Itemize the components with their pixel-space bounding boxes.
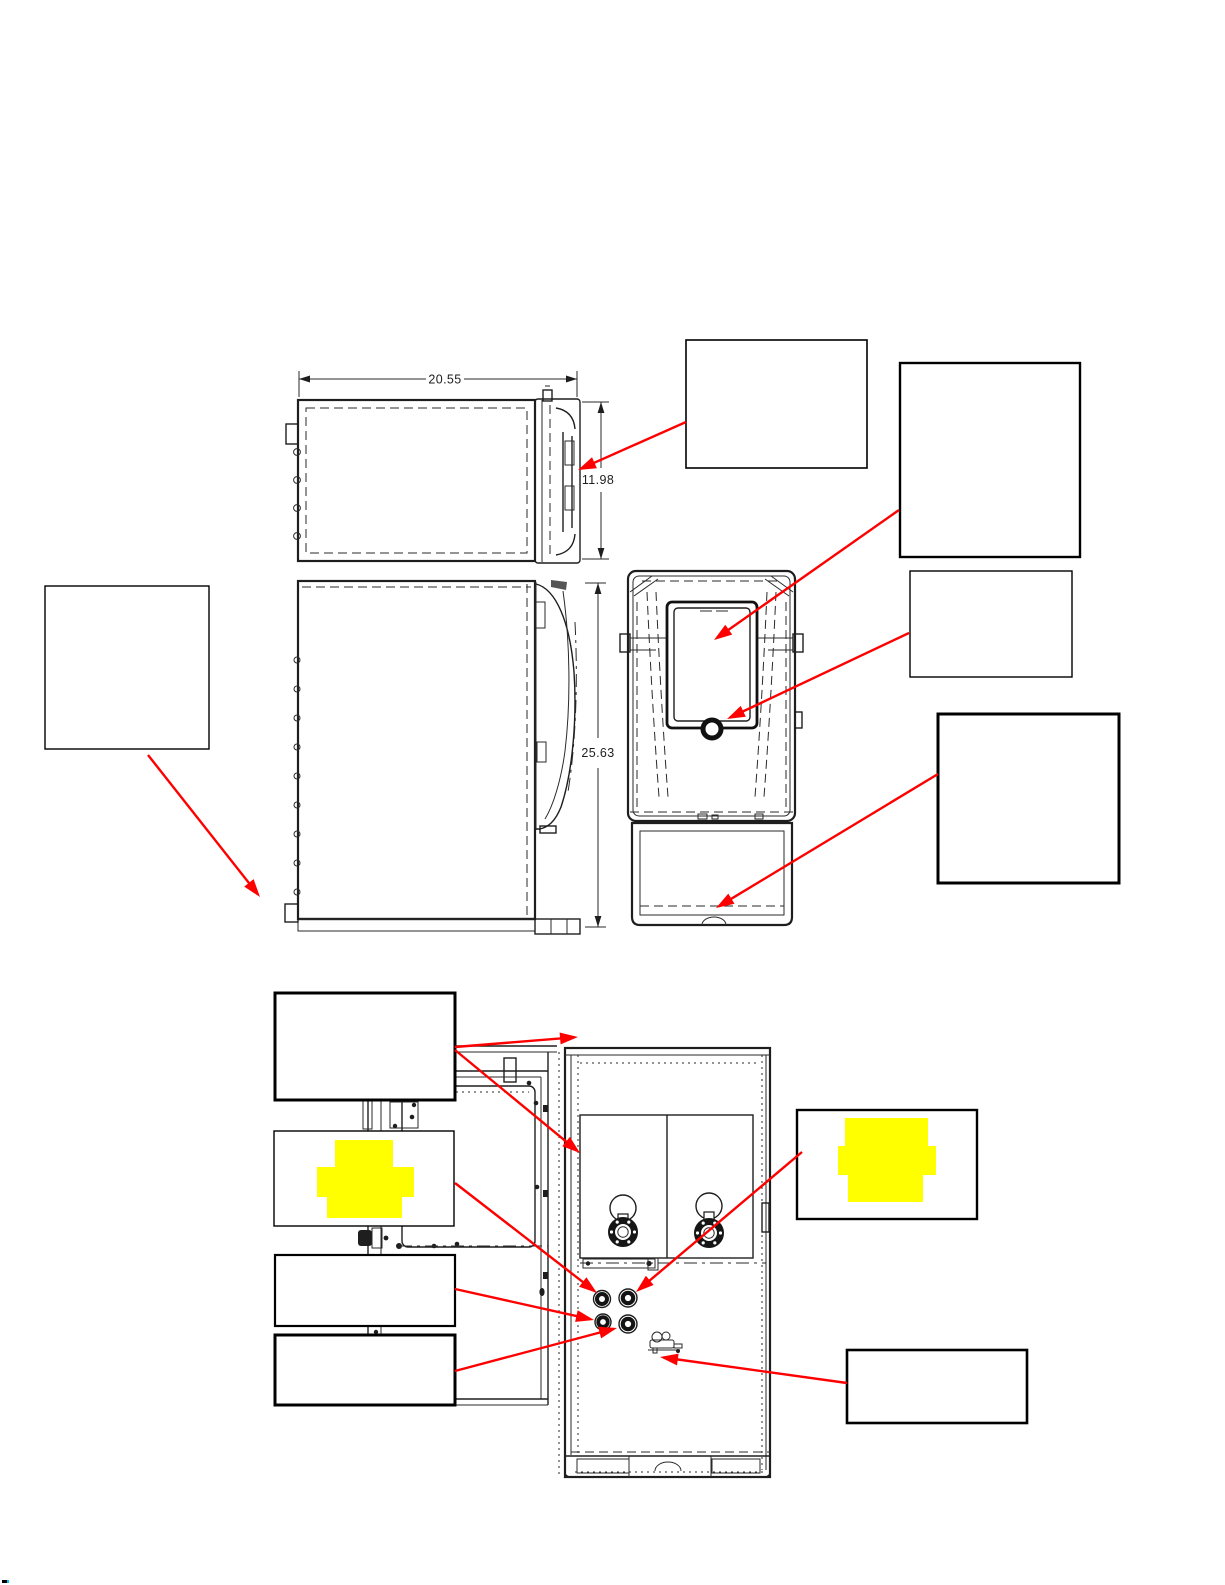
- side-lower-callout: [45, 586, 209, 749]
- dispense-area-callout: [900, 363, 1080, 557]
- door-top-cap: [551, 580, 567, 590]
- callout-boxes: [45, 340, 1119, 1423]
- dispense-cavity: [667, 602, 757, 728]
- dispense-port: [703, 720, 721, 738]
- fitting-lower-left-callout: [275, 1255, 455, 1326]
- valve-component: [648, 1332, 682, 1353]
- highlight-right-callout: [797, 1110, 977, 1219]
- top-width-dimension: 20.55: [428, 373, 461, 387]
- cabinet-body: [559, 1048, 770, 1477]
- leader-arrows: [148, 422, 938, 1383]
- valve-callout: [847, 1350, 1027, 1423]
- door-latch-tab: [504, 1058, 516, 1082]
- supply-fittings: [594, 1289, 638, 1333]
- side-height-dimension: 25.63: [581, 746, 614, 760]
- fitting-lower-right-callout: [275, 1335, 455, 1405]
- side-view-drawing: 25.63: [285, 580, 615, 934]
- interior-upper-callout: [275, 993, 455, 1100]
- side-foot-tab: [285, 904, 298, 922]
- dispense-port-callout: [910, 571, 1072, 677]
- lock-ring-left: [610, 1195, 636, 1244]
- manual-figure-page: 20.55 11.98: [0, 0, 1225, 1585]
- technical-diagram: 20.55 11.98: [0, 0, 1225, 1585]
- drip-tray-callout: [938, 714, 1119, 883]
- arrowheads: [244, 457, 746, 1365]
- corner-artifact: [2, 1580, 9, 1583]
- drip-tray: [632, 823, 792, 925]
- top-depth-dimension: 11.98: [582, 473, 614, 487]
- yellow-highlight-right: [838, 1118, 936, 1202]
- top-view-drawing: 20.55 11.98: [286, 371, 614, 563]
- highlight-left-callout: [274, 1131, 454, 1226]
- door-edge-callout: [686, 340, 867, 468]
